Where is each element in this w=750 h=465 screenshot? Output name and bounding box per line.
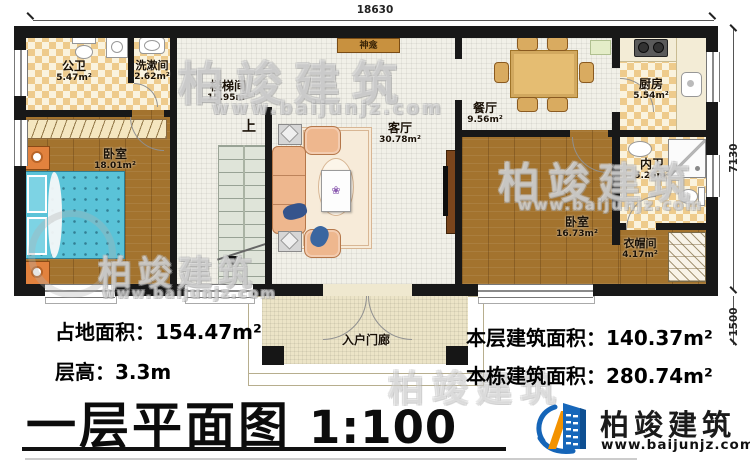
window	[706, 155, 720, 197]
wall-interior	[608, 130, 706, 137]
wall-interior	[455, 35, 462, 59]
brand-logo-icon	[536, 398, 594, 456]
entry-threshold	[323, 284, 412, 296]
faucet-icon	[687, 80, 694, 87]
title-underline-thin	[25, 458, 637, 460]
room-area: 9.56m²	[453, 115, 517, 125]
wall-interior	[265, 107, 272, 284]
room-label-keting: 客厅 30.78m²	[366, 122, 434, 146]
dining-table	[510, 50, 578, 98]
armchair	[304, 126, 341, 155]
top-dimension-line	[33, 20, 714, 21]
room-area: 16.73m²	[543, 229, 611, 239]
right-upper-dimension-label: 7130	[728, 136, 740, 180]
room-name: 公卫	[39, 60, 109, 73]
room-area: 30.78m²	[366, 135, 434, 145]
plant-box	[590, 40, 611, 55]
dining-chair	[517, 97, 538, 112]
porch-pillar	[446, 346, 468, 365]
toilet-tank	[698, 187, 705, 206]
window	[185, 284, 253, 298]
room-name: 入户门廊	[318, 334, 414, 347]
dining-chair	[547, 97, 568, 112]
window	[14, 50, 28, 96]
bathroom-sink	[628, 141, 652, 157]
porch-step-line	[248, 373, 482, 374]
dining-chair	[579, 62, 594, 83]
room-area: 5.54m²	[616, 91, 686, 101]
room-label-chufang: 厨房 5.54m²	[616, 78, 686, 102]
tv	[443, 166, 448, 216]
dining-chair	[547, 36, 568, 51]
room-label-bedroom-left: 卧室 18.01m²	[78, 148, 152, 172]
brand-url: www.baijunjz.com	[601, 437, 750, 453]
burner-icon	[638, 42, 649, 53]
window	[14, 120, 28, 166]
dining-chair	[494, 62, 509, 83]
room-area: 18.01m²	[78, 161, 152, 171]
stairs-up-label: 上	[238, 120, 260, 136]
dining-chair	[517, 36, 538, 51]
toilet-bowl	[679, 189, 698, 204]
room-name: 卧室	[543, 216, 611, 229]
wall-interior	[455, 100, 462, 284]
watermark-swoosh-icon	[28, 210, 116, 298]
washing-machine-drum	[111, 41, 123, 53]
room-label-neiwei: 内卫 5.26m²	[620, 158, 684, 182]
room-name: 餐厅	[453, 102, 517, 115]
floor-height-text: 层高：3.3m	[55, 356, 171, 385]
porch-pillar	[262, 346, 284, 365]
toilet-bowl	[75, 45, 93, 59]
room-label-xishujian: 洗漱间 2.62m²	[124, 60, 180, 82]
wall-interior	[21, 110, 132, 117]
wall-interior	[656, 223, 706, 230]
pillow	[27, 175, 47, 213]
room-name: 内卫	[620, 158, 684, 171]
room-name: 厨房	[616, 78, 686, 91]
floor-area-text: 本层建筑面积：140.37m²	[466, 322, 713, 351]
room-area: 2.62m²	[124, 72, 180, 82]
room-label-porch: 入户门廊	[318, 334, 414, 347]
wall-interior	[612, 137, 620, 245]
window	[478, 284, 593, 298]
wall-interior	[164, 110, 177, 117]
window	[706, 52, 720, 102]
wall-interior	[612, 35, 620, 68]
floor-plan-page: 18630 7130 1500 ❀	[0, 0, 750, 465]
washroom-sink-basin	[144, 40, 160, 51]
room-label-yimaojian: 衣帽间 4.17m²	[606, 238, 674, 260]
room-area: 15.95m²	[188, 93, 268, 103]
room-area: 5.26m²	[620, 171, 684, 181]
room-area: 4.17m²	[606, 250, 674, 260]
top-dimension-label: 18630	[300, 4, 450, 16]
room-label-loutijian: 楼梯间 15.95m²	[188, 80, 268, 104]
dimension-tick	[27, 12, 34, 19]
wall-interior	[455, 130, 570, 137]
room-area: 5.47m²	[39, 73, 109, 83]
flower-icon: ❀	[331, 184, 340, 197]
wall-interior	[620, 223, 626, 230]
room-label-canting: 餐厅 9.56m²	[453, 102, 517, 126]
room-label-gongwei: 公卫 5.47m²	[39, 60, 109, 84]
sofa	[272, 146, 306, 234]
room-name: 洗漱间	[124, 60, 180, 72]
shrine-label: 神龛	[337, 41, 400, 51]
stairs-rail	[243, 145, 245, 284]
room-name: 楼梯间	[188, 80, 268, 93]
drain-icon	[695, 166, 700, 171]
wall-interior	[612, 112, 620, 137]
room-name: 客厅	[366, 122, 434, 135]
room-label-bedroom-right: 卧室 16.73m²	[543, 216, 611, 240]
room-name: 卧室	[78, 148, 152, 161]
room-name: 衣帽间	[606, 238, 674, 250]
dimension-tick	[709, 12, 716, 19]
lamp-icon	[31, 151, 43, 163]
land-area-text: 占地面积：154.47m²	[55, 316, 262, 345]
coffee-table: ❀	[321, 170, 351, 212]
stairs-direction-arrow	[228, 256, 238, 266]
title-underline	[22, 447, 506, 451]
burner-icon	[653, 42, 664, 53]
building-logo-icon	[536, 398, 594, 456]
building-area-text: 本栋建筑面积：280.74m²	[466, 360, 713, 389]
toilet-tank	[72, 37, 96, 44]
